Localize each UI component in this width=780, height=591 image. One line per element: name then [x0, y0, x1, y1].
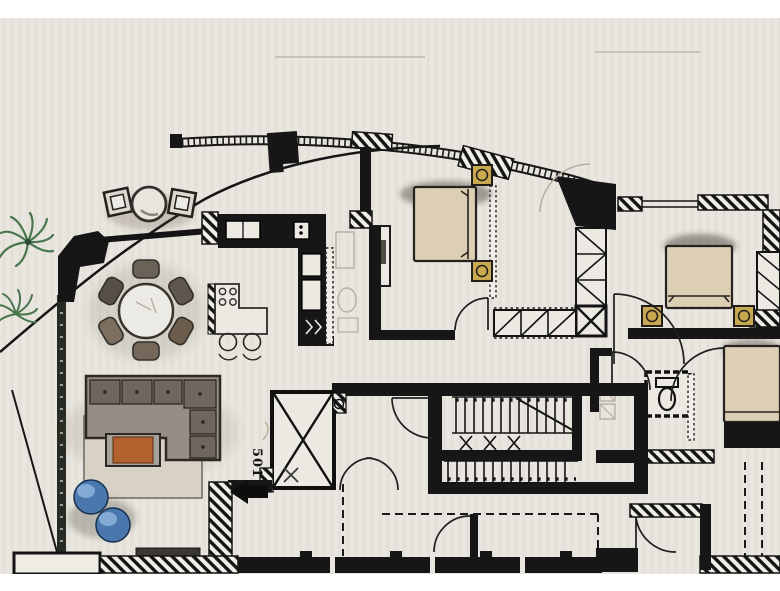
wall-notch	[560, 551, 572, 558]
wall-segment	[596, 548, 638, 572]
terrace-chair	[104, 188, 132, 216]
wall-hatch	[100, 556, 238, 573]
bedroom2-bottom-wall	[628, 328, 780, 339]
central-handrail	[436, 450, 582, 461]
cooktop-appliance	[294, 222, 309, 239]
wall-segment	[724, 422, 780, 448]
facade-end-block	[170, 134, 182, 148]
wall-segment	[700, 504, 711, 570]
island-hatch-edge	[208, 284, 215, 334]
stair-bottom-wall	[428, 482, 648, 494]
wall-hatch	[700, 556, 780, 573]
newel-wall	[572, 396, 582, 458]
stair-left-wall	[428, 396, 442, 482]
built-in-appliance	[302, 254, 321, 276]
wall-stub	[470, 514, 478, 557]
kitchen-wall-hatch	[202, 212, 218, 244]
built-in-appliance	[302, 280, 321, 310]
entry-wall-hatch	[209, 482, 232, 558]
wall-hatch	[630, 504, 702, 517]
stud-wall	[688, 374, 694, 440]
bistro-table	[132, 187, 166, 221]
double-bed	[414, 187, 476, 261]
floor-plan-scan: 501	[0, 0, 780, 591]
bedroom1-bottom-wall	[369, 330, 455, 340]
terrace-chair	[168, 189, 196, 217]
pouf-highlight	[99, 512, 117, 526]
pouf	[96, 508, 130, 542]
dining-chair	[133, 342, 159, 360]
wall-notch	[390, 551, 402, 558]
wall-slit	[520, 557, 525, 573]
corner-block	[14, 553, 100, 574]
nightstand	[472, 261, 492, 281]
tv-console	[136, 548, 200, 556]
nightstand	[472, 165, 492, 185]
bottom-wall	[238, 557, 602, 573]
appliance-knob	[299, 225, 303, 229]
unit-number-label: 501	[249, 448, 264, 478]
bottom-margin	[0, 574, 780, 591]
pouf-highlight	[77, 484, 95, 498]
wall-segment	[590, 348, 599, 412]
stair-right-wall	[634, 396, 648, 484]
palm-center	[25, 239, 31, 245]
wall-segment	[590, 348, 612, 356]
dining-table	[119, 284, 173, 338]
stud-wall	[326, 248, 333, 344]
stair-top-wall	[332, 383, 648, 396]
wall-hatch	[350, 211, 372, 228]
wall-segment	[360, 147, 371, 213]
nightstand	[642, 306, 662, 326]
pouf	[74, 480, 108, 514]
wall-hatch	[698, 195, 768, 210]
nightstand	[734, 306, 754, 326]
wall-slit	[430, 557, 435, 573]
coffee-table-top	[113, 437, 153, 463]
double-bed	[724, 346, 780, 422]
wall-hatch	[763, 210, 780, 252]
wall-segment	[369, 226, 381, 338]
wall-segment	[596, 450, 636, 463]
facade-hatch-segment	[351, 132, 392, 151]
floor-plan-canvas: 501	[0, 0, 780, 591]
wall-slit	[330, 557, 335, 573]
wall-hatch	[618, 197, 642, 211]
wall-notch	[480, 551, 492, 558]
dining-chair	[133, 260, 159, 278]
top-margin	[0, 0, 780, 18]
double-bed	[666, 246, 732, 308]
appliance-knob	[299, 231, 303, 235]
wall-notch	[300, 551, 312, 558]
